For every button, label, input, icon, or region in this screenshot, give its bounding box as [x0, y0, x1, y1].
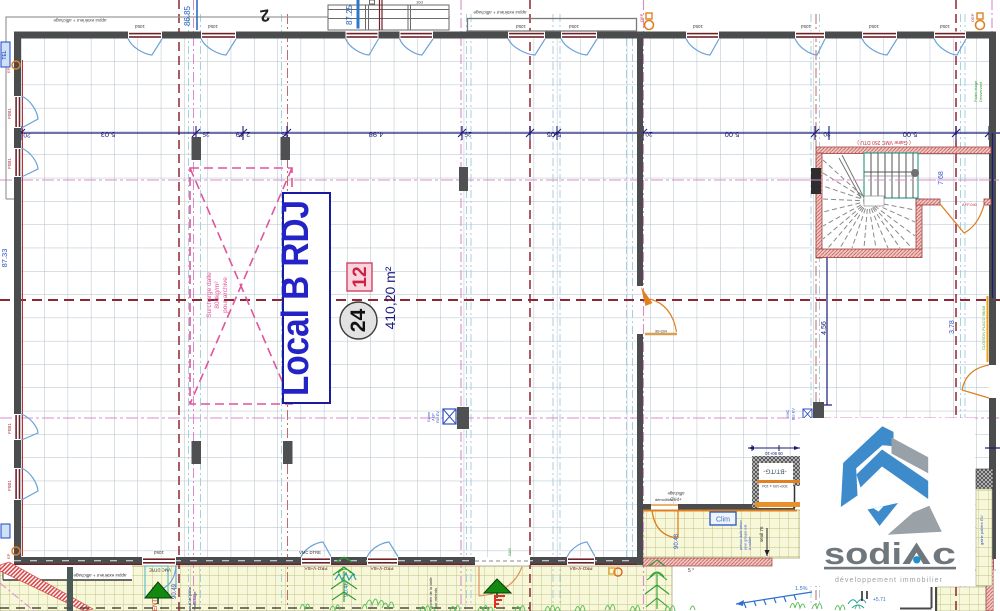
svg-text:sodi: sodi: [824, 536, 902, 571]
svg-text:05 90+10: 05 90+10: [765, 451, 783, 456]
svg-text:EU-EV: EU-EV: [791, 408, 796, 421]
svg-text:pour groupe ext.: pour groupe ext.: [744, 524, 748, 550]
svg-text:PRO-V+BA: PRO-V+BA: [305, 566, 328, 571]
svg-text:F0B1: F0B1: [7, 423, 12, 434]
svg-text:appui extérieur + affichage: appui extérieur + affichage: [473, 10, 527, 15]
svg-text:90.48: 90.48: [674, 533, 680, 549]
svg-text:5.05: 5.05: [547, 130, 562, 139]
svg-text:105d: 105d: [568, 24, 579, 29]
svg-text:OEP: OEP: [639, 13, 644, 22]
svg-text:25: 25: [281, 130, 289, 137]
svg-text:Gaine: Gaine: [427, 412, 431, 422]
svg-text:105d: 105d: [800, 24, 811, 29]
svg-text:105d: 105d: [692, 24, 703, 29]
svg-text:( Gaine VMC 250 DTU ): ( Gaine VMC 250 DTU ): [857, 139, 911, 145]
svg-text:+5.71: +5.71: [873, 597, 886, 603]
svg-text:105d: 105d: [134, 24, 145, 29]
svg-text:pour archive: pour archive: [222, 277, 229, 313]
svg-text:Local B RDJ: Local B RDJ: [275, 200, 317, 396]
svg-text:4.56: 4.56: [821, 321, 828, 335]
svg-text:20: 20: [645, 130, 653, 137]
svg-text:Clim: Clim: [716, 517, 730, 524]
svg-text:démolition: démolition: [655, 497, 673, 502]
svg-text:4.98: 4.98: [369, 130, 384, 139]
svg-text:F0B1: F0B1: [7, 480, 12, 491]
svg-text:OEP: OEP: [970, 13, 975, 22]
svg-text:CLOISON PLACO 98/48: CLOISON PLACO 98/48: [981, 305, 986, 350]
svg-text:25: 25: [464, 130, 472, 137]
svg-text:105d: 105d: [939, 24, 950, 29]
svg-text:F0B1: F0B1: [7, 158, 12, 169]
svg-text:VMC DTRE: VMC DTRE: [149, 568, 171, 573]
svg-text:300+100 x 10d: 300+100 x 10d: [762, 484, 787, 488]
svg-text:105d: 105d: [207, 24, 218, 29]
svg-text:EP: EP: [6, 67, 11, 73]
svg-text:SAS: SAS: [507, 548, 512, 556]
svg-text:87.33: 87.33: [0, 249, 9, 268]
svg-text:seuil 76: seuil 76: [759, 526, 764, 542]
svg-text:5.00: 5.00: [725, 130, 740, 139]
svg-text:VMC: VMC: [785, 409, 790, 418]
svg-text:AFF.040: AFF.040: [962, 202, 978, 207]
svg-text:105d: 105d: [868, 24, 879, 29]
svg-text:TEL: TEL: [2, 50, 8, 59]
svg-text:20: 20: [23, 131, 31, 138]
svg-text:105d: 105d: [515, 24, 526, 29]
svg-text:gaine palière EU: gaine palière EU: [979, 515, 984, 545]
svg-text:5.00: 5.00: [903, 130, 918, 139]
svg-text:F0B1: F0B1: [7, 108, 12, 119]
svg-text:90.49: 90.49: [172, 583, 178, 599]
svg-text:105d: 105d: [153, 550, 164, 555]
svg-text:EP: EP: [6, 553, 11, 559]
svg-text:12: 12: [350, 266, 371, 287]
svg-text:Desservant: Desservant: [978, 81, 983, 102]
svg-text:appui extérieur + affichage: appui extérieur + affichage: [73, 573, 127, 578]
svg-text:1.5%: 1.5%: [795, 586, 808, 592]
svg-text:développement immobilier: développement immobilier: [835, 577, 943, 584]
svg-text:30: 30: [823, 130, 831, 137]
svg-text:RU-EV: RU-EV: [436, 411, 440, 423]
svg-text:sur refends: sur refends: [433, 588, 438, 608]
svg-text:5.03: 5.03: [101, 130, 116, 139]
svg-text:VMC DTRE: VMC DTRE: [299, 550, 321, 555]
svg-text:à valider: à valider: [748, 536, 752, 550]
svg-text:10d: 10d: [416, 0, 423, 5]
svg-text:3.78: 3.78: [949, 320, 956, 334]
svg-text:25: 25: [202, 130, 210, 137]
svg-text:prévoir dalle béton: prévoir dalle béton: [739, 520, 743, 550]
svg-text:c: c: [932, 536, 956, 571]
svg-text:800kg/m²: 800kg/m²: [214, 281, 221, 309]
svg-text:5 °: 5 °: [688, 568, 694, 574]
svg-text:2.49: 2.49: [236, 130, 251, 139]
svg-text:410,20 m²: 410,20 m²: [382, 266, 398, 329]
svg-text:90+204: 90+204: [655, 330, 667, 334]
svg-text:7.68: 7.68: [938, 171, 945, 185]
svg-text:-BT/TG-: -BT/TG-: [763, 468, 786, 475]
svg-text:appui extérieur + affichage: appui extérieur + affichage: [53, 18, 107, 23]
svg-text:AEP: AEP: [432, 413, 436, 421]
svg-text:87.25: 87.25: [345, 4, 354, 25]
svg-text:24: 24: [347, 309, 370, 333]
svg-text:PRO-V+BA: PRO-V+BA: [570, 566, 593, 571]
svg-text:86.85: 86.85: [183, 5, 192, 26]
svg-text:2: 2: [259, 5, 272, 25]
svg-text:affichage: affichage: [667, 491, 685, 496]
svg-text:PRO-V+BA: PRO-V+BA: [371, 566, 394, 571]
svg-text:Surcharge dalle: Surcharge dalle: [206, 272, 213, 318]
